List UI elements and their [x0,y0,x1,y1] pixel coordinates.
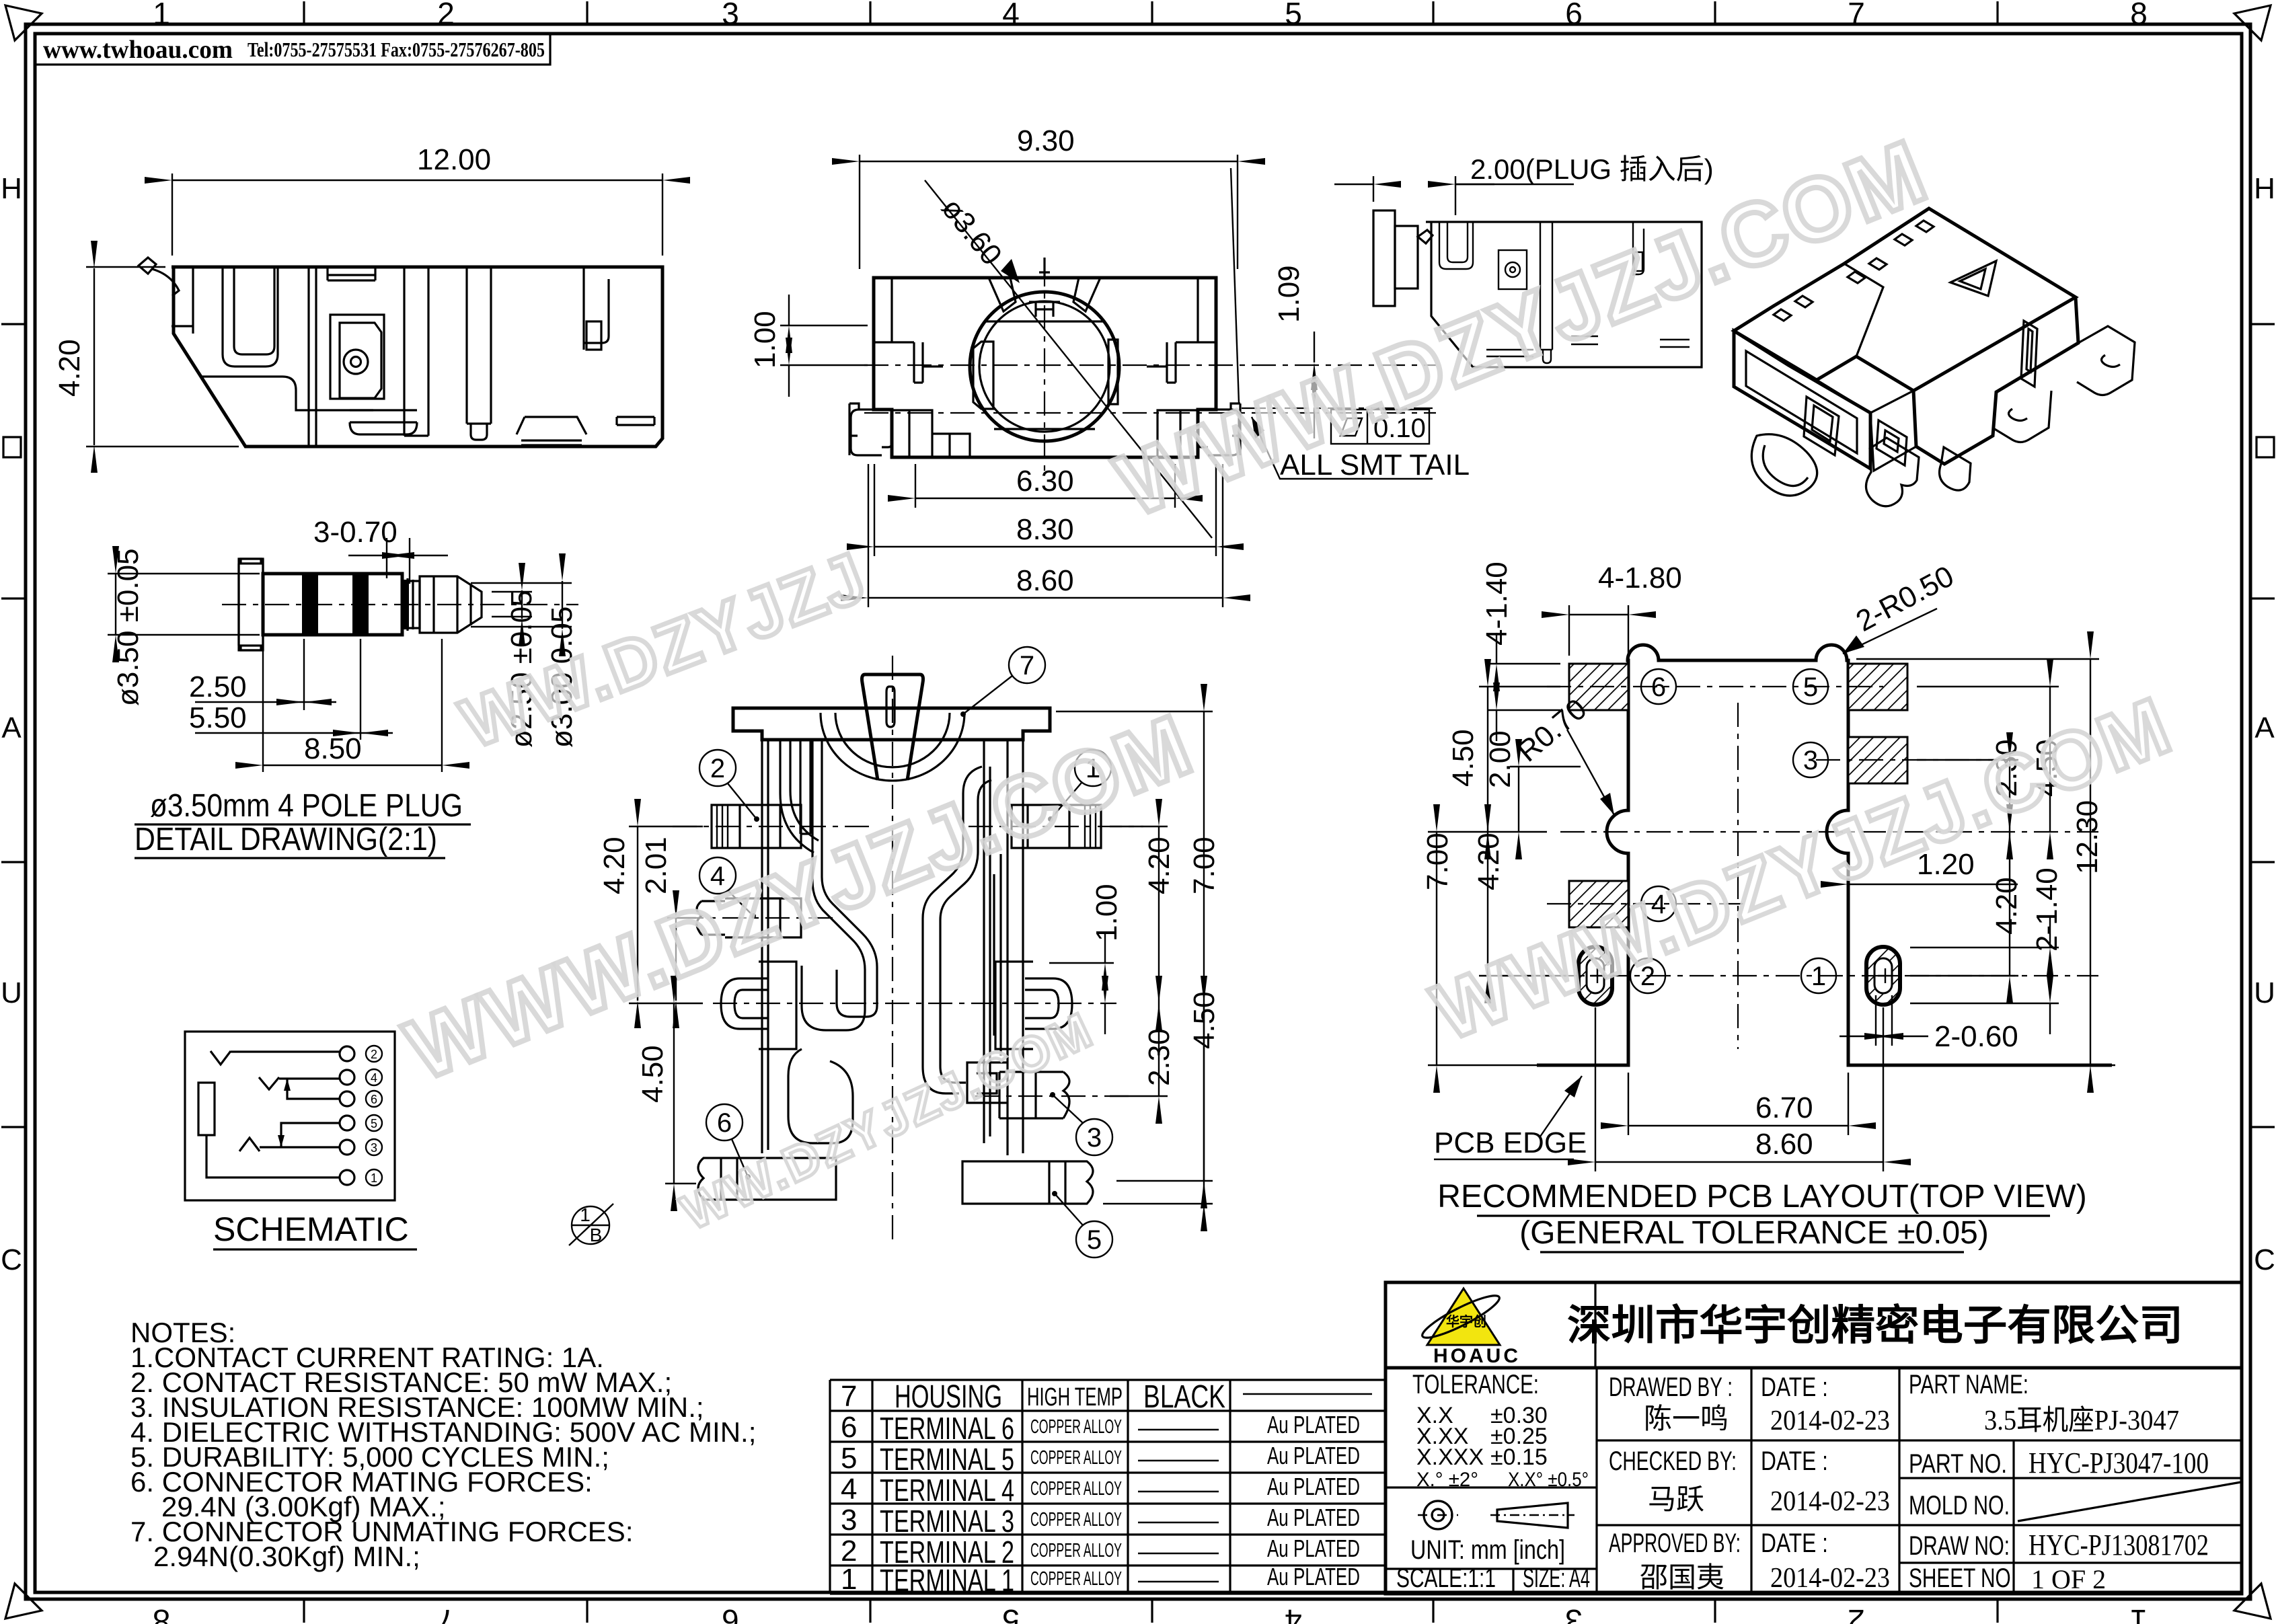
svg-text:DETAIL DRAWING(2:1): DETAIL DRAWING(2:1) [135,822,437,857]
svg-text:2014-02-23: 2014-02-23 [1770,1486,1890,1517]
svg-text:±0.15: ±0.15 [1490,1444,1548,1470]
svg-text:TERMINAL 3: TERMINAL 3 [880,1504,1014,1539]
svg-text:6: 6 [1651,672,1666,702]
svg-text:Au PLATED: Au PLATED [1267,1563,1360,1590]
svg-text:DATE :: DATE : [1761,1446,1828,1476]
svg-text:(GENERAL TOLERANCE ±0.05): (GENERAL TOLERANCE ±0.05) [1519,1215,1989,1251]
svg-text:B: B [590,1225,603,1245]
svg-text:陈一鸣: 陈一鸣 [1644,1403,1729,1434]
svg-text:5: 5 [841,1442,857,1475]
svg-text:4: 4 [841,1473,857,1506]
svg-text:A: A [2254,711,2275,744]
svg-text:1: 1 [2130,1603,2148,1624]
svg-text:4: 4 [371,1071,377,1085]
svg-text:4.20: 4.20 [53,339,86,397]
svg-text:MOLD NO.: MOLD NO. [1909,1491,2010,1520]
svg-text:HIGH TEMP: HIGH TEMP [1027,1383,1123,1412]
svg-text:3: 3 [371,1141,377,1155]
svg-text:HOAUC: HOAUC [1433,1345,1521,1367]
svg-text:RECOMMENDED PCB LAYOUT(TOP VIE: RECOMMENDED PCB LAYOUT(TOP VIEW) [1437,1179,2086,1214]
svg-text:SCALE:1:1: SCALE:1:1 [1396,1563,1496,1593]
svg-text:6: 6 [722,1603,739,1624]
svg-text:5.50: 5.50 [189,701,247,734]
svg-text:2-1.40: 2-1.40 [2031,867,2063,952]
svg-text:HYC-PJ13081702: HYC-PJ13081702 [2028,1529,2209,1561]
svg-text:4.50: 4.50 [1188,991,1221,1049]
svg-text:5: 5 [1087,1225,1102,1255]
svg-text:4.20: 4.20 [1990,877,2023,935]
svg-text:8.50: 8.50 [304,732,362,765]
svg-text:2: 2 [710,754,725,783]
svg-text:4: 4 [1002,0,1020,31]
svg-text:12.00: 12.00 [417,143,491,176]
svg-text:7: 7 [1848,0,1865,31]
svg-text:3: 3 [1803,746,1818,775]
svg-text:U: U [1,976,22,1009]
svg-text:1.00: 1.00 [1090,884,1123,941]
svg-text:DRAW NO:: DRAW NO: [1909,1531,2010,1561]
svg-text:C: C [1,1243,22,1276]
svg-text:华宇创: 华宇创 [1446,1313,1486,1329]
svg-text:1.09: 1.09 [1273,265,1305,323]
svg-text:2: 2 [437,0,455,31]
svg-text:X.X° ±0.5°: X.X° ±0.5° [1508,1469,1589,1491]
svg-text:2: 2 [1848,1603,1865,1624]
svg-text:6: 6 [841,1411,857,1444]
svg-text:6: 6 [717,1108,732,1138]
svg-text:X.° ±2°: X.° ±2° [1416,1469,1478,1491]
svg-text:4.50: 4.50 [636,1045,669,1103]
svg-text:4.20: 4.20 [1472,833,1505,890]
svg-text:COPPER ALLOY: COPPER ALLOY [1030,1540,1122,1561]
svg-text:Au PLATED: Au PLATED [1267,1504,1360,1531]
svg-text:H: H [1,172,22,205]
svg-text:5: 5 [1285,0,1302,31]
svg-text:2.50: 2.50 [189,670,247,703]
svg-text:SIZE: A4: SIZE: A4 [1523,1563,1590,1593]
svg-text:TOLERANCE:: TOLERANCE: [1412,1370,1539,1399]
svg-text:4-1.80: 4-1.80 [1598,562,1682,594]
svg-text:APPROVED BY:: APPROVED BY: [1609,1529,1741,1558]
svg-text:UNIT: mm [inch]: UNIT: mm [inch] [1410,1535,1565,1565]
svg-text:HYC-PJ3047-100: HYC-PJ3047-100 [2028,1446,2209,1479]
svg-text:www.twhoau.com: www.twhoau.com [43,36,233,64]
svg-text:SCHEMATIC: SCHEMATIC [213,1210,409,1248]
svg-text:9.30: 9.30 [1017,124,1075,157]
svg-text:COPPER ALLOY: COPPER ALLOY [1030,1509,1122,1531]
svg-text:2014-02-23: 2014-02-23 [1770,1563,1890,1594]
svg-text:Au PLATED: Au PLATED [1267,1442,1360,1469]
svg-text:7.00: 7.00 [1421,833,1454,890]
svg-text:3-0.70: 3-0.70 [313,516,397,549]
svg-text:COPPER ALLOY: COPPER ALLOY [1030,1478,1122,1500]
svg-text:DRAWED BY :: DRAWED BY : [1609,1372,1733,1402]
svg-text:4: 4 [1285,1603,1302,1624]
svg-text:HOUSING: HOUSING [895,1379,1002,1415]
svg-text:7: 7 [437,1603,455,1624]
svg-text:8.60: 8.60 [1016,564,1074,597]
svg-text:8.30: 8.30 [1016,513,1074,546]
svg-text:4.50: 4.50 [1447,729,1480,787]
svg-text:3.5耳机座PJ-3047: 3.5耳机座PJ-3047 [1984,1405,2179,1436]
svg-text:5: 5 [1002,1603,1020,1624]
svg-text:5: 5 [371,1117,377,1130]
svg-text:1 OF 2: 1 OF 2 [2031,1564,2106,1594]
svg-text:H: H [2254,172,2275,205]
svg-text:7: 7 [1020,651,1034,681]
svg-text:ø3.50 ±0.05: ø3.50 ±0.05 [112,548,145,706]
svg-text:PART NO.: PART NO. [1909,1449,2007,1479]
svg-text:2: 2 [371,1048,377,1061]
svg-text:Tel:0755-27575531 Fax:0755-27: Tel:0755-27575531 Fax:0755-27576267-805 [248,38,545,61]
svg-text:PART NAME:: PART NAME: [1909,1370,2028,1399]
svg-text:2-0.60: 2-0.60 [1934,1020,2018,1053]
svg-text:4.20: 4.20 [598,837,631,894]
svg-text:SHEET NO.: SHEET NO. [1909,1563,2016,1593]
svg-text:Au PLATED: Au PLATED [1267,1535,1360,1562]
svg-text:1: 1 [841,1563,857,1596]
svg-text:CHECKED BY:: CHECKED BY: [1609,1446,1737,1476]
svg-text:邵国夷: 邵国夷 [1640,1561,1724,1593]
svg-text:5: 5 [1803,672,1818,702]
svg-text:深圳市华宇创精密电子有限公司: 深圳市华宇创精密电子有限公司 [1567,1303,2183,1349]
svg-text:马跃: 马跃 [1648,1483,1704,1515]
svg-text:1: 1 [371,1171,377,1185]
svg-text:A: A [1,711,22,744]
svg-text:3: 3 [841,1504,857,1537]
svg-text:COPPER ALLOY: COPPER ALLOY [1030,1416,1122,1438]
svg-text:COPPER ALLOY: COPPER ALLOY [1030,1568,1122,1590]
svg-text:4.20: 4.20 [1143,837,1176,894]
svg-text:DATE :: DATE : [1761,1529,1828,1558]
svg-text:3: 3 [1565,1603,1583,1624]
svg-text:2.00(PLUG 插入后): 2.00(PLUG 插入后) [1470,153,1714,185]
svg-text:BLACK: BLACK [1143,1379,1225,1415]
svg-text:6: 6 [1565,0,1583,31]
svg-text:Au PLATED: Au PLATED [1267,1473,1360,1500]
svg-text:6: 6 [371,1093,377,1106]
svg-text:2.30: 2.30 [1143,1028,1176,1086]
svg-text:C: C [2254,1243,2275,1276]
svg-text:TERMINAL 6: TERMINAL 6 [880,1411,1014,1446]
svg-text:12.30: 12.30 [2071,800,2104,874]
svg-text:8: 8 [153,1603,170,1624]
svg-text:ø3.50mm 4 POLE PLUG: ø3.50mm 4 POLE PLUG [150,788,463,824]
svg-text:2.01: 2.01 [640,837,673,894]
svg-text:4-1.40: 4-1.40 [1480,562,1513,646]
svg-text:X.XXX: X.XXX [1416,1444,1484,1470]
svg-text:TERMINAL 4: TERMINAL 4 [880,1473,1014,1508]
svg-text:1: 1 [580,1204,591,1225]
svg-text:Au PLATED: Au PLATED [1267,1411,1360,1438]
svg-text:8: 8 [2130,0,2148,31]
svg-text:PCB EDGE: PCB EDGE [1434,1126,1587,1159]
svg-text:1: 1 [1811,962,1826,991]
svg-text:7: 7 [841,1380,857,1413]
svg-text:1: 1 [153,0,170,31]
svg-text:TERMINAL 5: TERMINAL 5 [880,1442,1014,1477]
svg-text:U: U [2254,976,2275,1009]
svg-text:6.70: 6.70 [1755,1091,1813,1124]
svg-text:2.00: 2.00 [1484,730,1517,788]
svg-text:DATE :: DATE : [1761,1372,1828,1402]
svg-text:COPPER ALLOY: COPPER ALLOY [1030,1447,1122,1469]
svg-text:3: 3 [722,0,739,31]
svg-text:7.00: 7.00 [1188,837,1221,894]
svg-text:6.30: 6.30 [1016,465,1074,498]
svg-text:TERMINAL 1: TERMINAL 1 [880,1563,1014,1598]
svg-text:2014-02-23: 2014-02-23 [1770,1405,1890,1436]
svg-text:3: 3 [1087,1123,1102,1153]
svg-text:8.60: 8.60 [1755,1128,1813,1161]
svg-text:1.00: 1.00 [749,311,782,369]
svg-text:2.94N(0.30Kgf) MIN.;: 2.94N(0.30Kgf) MIN.; [153,1541,420,1572]
